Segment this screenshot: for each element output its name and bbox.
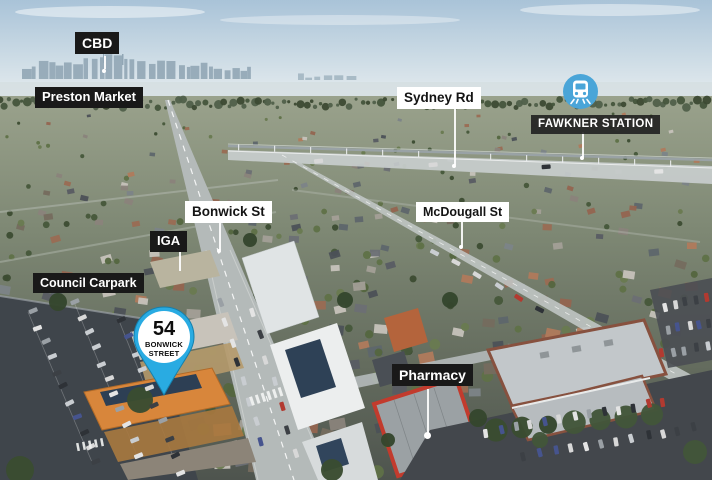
- label-mcdougall-st: McDougall St: [416, 202, 509, 222]
- label-sydney-rd: Sydney Rd: [397, 87, 481, 109]
- leader-line-fawkner: [582, 132, 584, 157]
- leader-dot-pharmacy: [424, 432, 431, 439]
- pin-number: 54: [131, 319, 197, 339]
- leader-line-iga: [179, 252, 181, 271]
- leader-line-mcdougall: [461, 220, 463, 247]
- pin-text: 54 BONWICK STREET: [131, 319, 197, 359]
- leader-dot-mcdougall: [459, 245, 463, 249]
- label-bonwick-st: Bonwick St: [185, 201, 272, 223]
- leader-dot-sydney-rd: [452, 164, 456, 168]
- pin-street: BONWICK STREET: [143, 340, 185, 359]
- label-preston-market: Preston Market: [35, 87, 143, 108]
- property-pin: 54 BONWICK STREET: [131, 306, 197, 396]
- aerial-scene: [0, 0, 712, 480]
- leader-line-cbd: [104, 56, 106, 69]
- label-council-carpark: Council Carpark: [33, 273, 144, 293]
- leader-dot-cbd: [102, 69, 106, 73]
- leader-line-bonwick: [219, 221, 221, 250]
- leader-line-pharmacy: [427, 389, 429, 433]
- leader-line-sydney-rd: [454, 107, 456, 165]
- train-icon: [562, 73, 599, 115]
- label-iga: IGA: [150, 231, 187, 252]
- leader-dot-bonwick: [217, 249, 221, 253]
- label-fawkner-station: FAWKNER STATION: [531, 115, 660, 134]
- aerial-photo: CBD Preston Market Sydney Rd FAWKNER STA…: [0, 0, 712, 480]
- label-cbd: CBD: [75, 32, 119, 54]
- leader-dot-fawkner: [580, 156, 584, 160]
- label-pharmacy: Pharmacy: [392, 364, 473, 386]
